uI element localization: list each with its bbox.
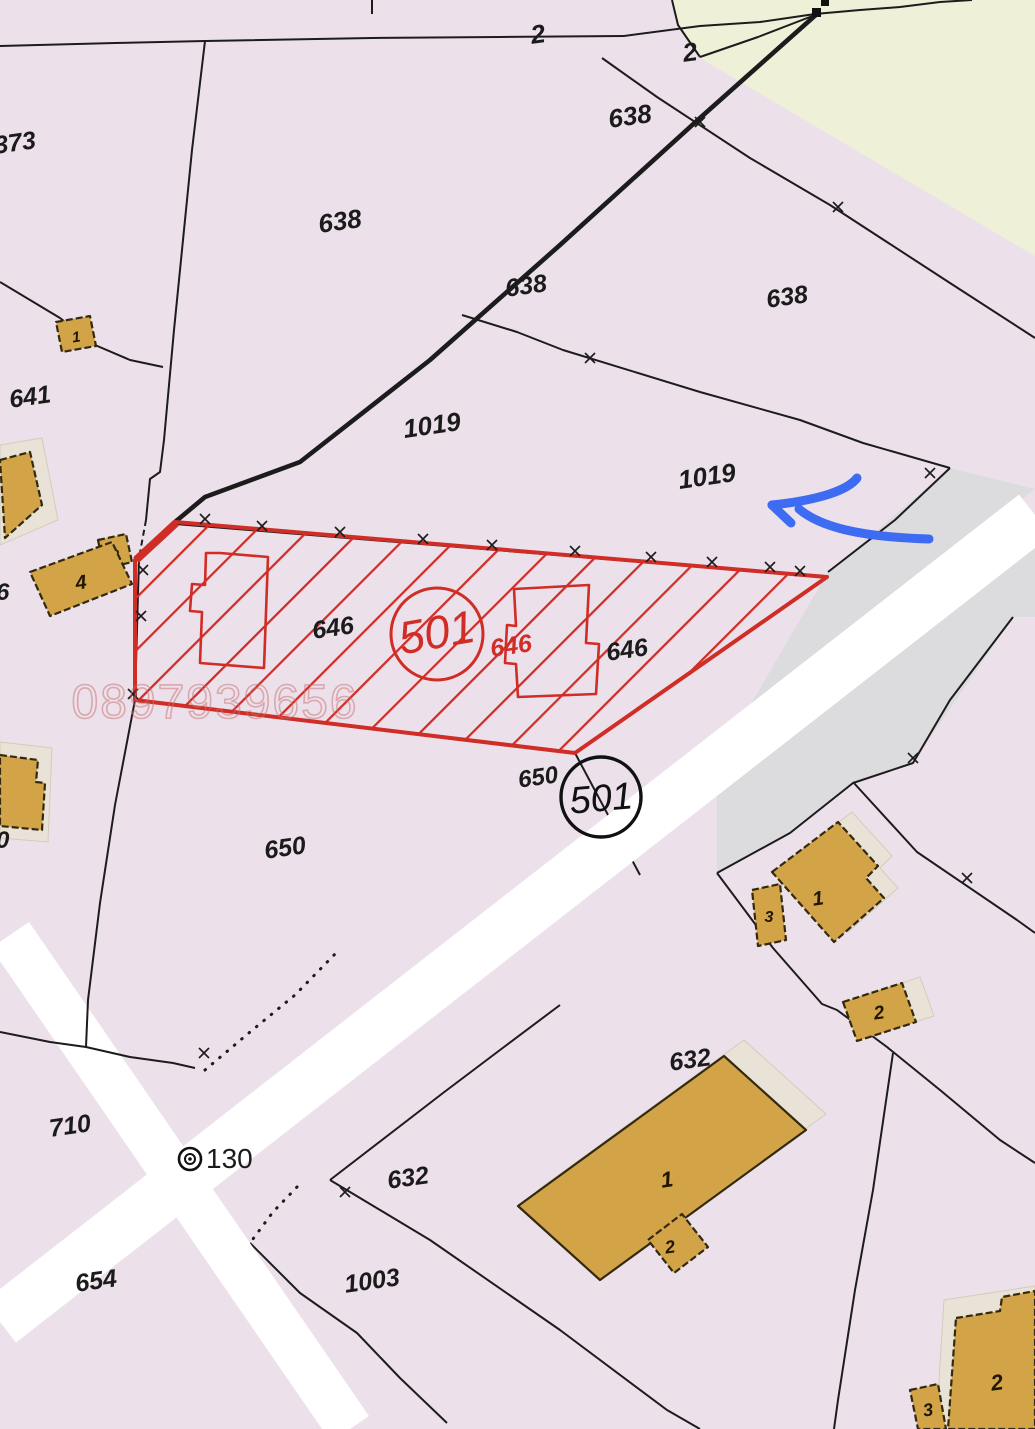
label-parcel-638: 638: [316, 203, 364, 239]
label-parcel-36: 36: [0, 579, 10, 606]
label-parcel-646: 646: [310, 611, 356, 645]
label-parcel-638: 638: [606, 98, 654, 134]
label-parcel-650: 650: [262, 831, 307, 865]
label-parcel-632: 632: [385, 1161, 430, 1195]
label-parcel-641: 641: [7, 380, 52, 414]
building-640: [0, 755, 45, 830]
label-point-130: 130: [206, 1143, 253, 1174]
label-parcel-646: 646: [604, 633, 650, 667]
label-parcel-638: 638: [764, 280, 809, 314]
label-parcel-646-red: 646: [488, 629, 534, 663]
label-black-501: 501: [568, 775, 635, 822]
building-number: 3: [765, 909, 774, 926]
label-parcel-650: 650: [516, 761, 560, 793]
watermark-phone: 0897939656: [72, 676, 359, 729]
cadastral-map-viewport: 501 1 3 4 1 3 2 1: [0, 0, 1035, 1429]
label-parcel-632: 632: [667, 1043, 712, 1077]
cadastral-map: 501 1 3 4 1 3 2 1: [0, 0, 1035, 1429]
label-parcel-640: 40: [0, 827, 10, 854]
label-parcel-710: 710: [47, 1109, 92, 1143]
survey-point-130-icon: [179, 1148, 201, 1170]
label-parcel-654: 654: [73, 1264, 118, 1298]
label-parcel-638: 638: [503, 269, 548, 303]
label-parcel-373: 373: [0, 126, 38, 160]
